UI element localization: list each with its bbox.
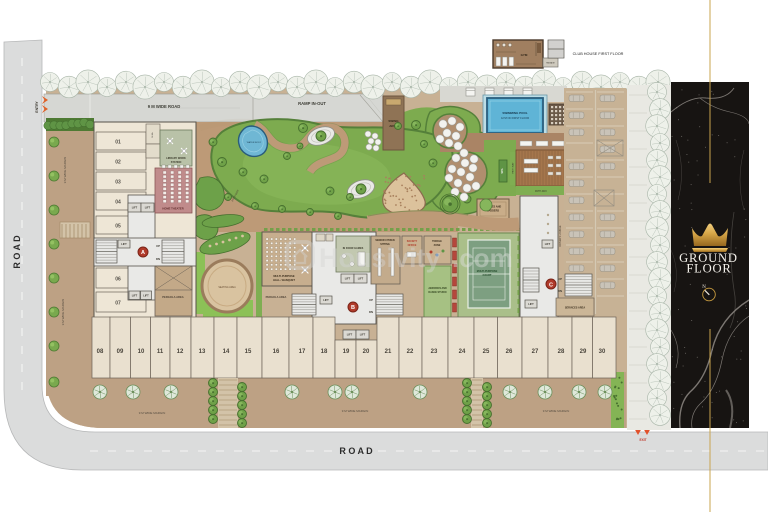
svg-text:09: 09 (117, 349, 124, 355)
svg-text:CLUB HOUSE FIRST FLOOR: CLUB HOUSE FIRST FLOOR (573, 52, 624, 56)
svg-text:DN: DN (558, 289, 562, 293)
svg-text:11: 11 (157, 349, 164, 355)
svg-text:LIFT: LIFT (121, 242, 127, 246)
svg-text:9 M WIDE MARGIN: 9 M WIDE MARGIN (61, 299, 65, 326)
svg-text:MULTI-PURPOSE: MULTI-PURPOSE (273, 274, 295, 278)
svg-text:02: 02 (115, 160, 121, 166)
svg-text:M.BA: M.BA (151, 132, 154, 138)
svg-text:30: 30 (599, 349, 606, 355)
svg-text:SWIMMING POOL: SWIMMING POOL (502, 111, 527, 115)
svg-text:ENTRY: ENTRY (35, 101, 39, 113)
svg-text:A: A (141, 250, 145, 256)
svg-text:PERGOLA AREA: PERGOLA AREA (266, 295, 287, 299)
svg-text:13: 13 (199, 349, 206, 355)
svg-text:STATION: STATION (171, 161, 182, 164)
svg-text:SPA: SPA (500, 168, 504, 173)
svg-text:C: C (549, 282, 553, 288)
svg-text:9 M WIDE MARGIN: 9 M WIDE MARGIN (139, 411, 166, 415)
svg-text:9 M WIDE MARGIN: 9 M WIDE MARGIN (543, 409, 570, 413)
svg-text:LIFT: LIFT (528, 302, 534, 306)
svg-text:HALL / BANQUET: HALL / BANQUET (273, 278, 295, 282)
svg-text:LIFT: LIFT (323, 298, 329, 302)
svg-text:18: 18 (321, 349, 328, 355)
svg-text:PATH-WAY: PATH-WAY (535, 190, 547, 193)
svg-text:29: 29 (580, 349, 587, 355)
svg-text:SENIOR CITIZEN: SENIOR CITIZEN (375, 239, 394, 242)
svg-text:B: B (351, 305, 355, 311)
svg-text:15: 15 (245, 349, 252, 355)
svg-text:R O A D: R O A D (12, 235, 22, 269)
svg-text:PATH-WAY: PATH-WAY (512, 162, 515, 174)
svg-text:17: 17 (299, 349, 306, 355)
svg-text:PASSAGE: PASSAGE (546, 62, 555, 65)
svg-text:LIFT: LIFT (145, 206, 151, 210)
svg-text:24: 24 (459, 349, 466, 355)
svg-text:LIFT: LIFT (143, 293, 149, 297)
svg-text:.com: .com (452, 243, 513, 273)
svg-text:RAMP IN-OUT: RAMP IN-OUT (298, 101, 326, 106)
svg-text:06: 06 (115, 277, 121, 283)
svg-text:25: 25 (483, 349, 490, 355)
svg-text:01: 01 (115, 140, 121, 146)
svg-text:LIFT: LIFT (347, 333, 353, 337)
svg-text:22: 22 (407, 349, 414, 355)
svg-text:PERGOLA AREA: PERGOLA AREA (162, 295, 184, 299)
svg-text:LIFT: LIFT (132, 293, 138, 297)
svg-text:Housivity: Housivity (319, 243, 441, 273)
svg-text:DRIVER'S LOUNGE: DRIVER'S LOUNGE (560, 225, 562, 246)
svg-text:LIFT: LIFT (132, 206, 138, 210)
svg-text:20: 20 (363, 349, 370, 355)
svg-text:FLOOR: FLOOR (686, 262, 731, 276)
svg-text:EXIT: EXIT (639, 438, 646, 442)
svg-text:DN: DN (156, 257, 160, 261)
svg-text:UP: UP (369, 298, 373, 302)
svg-text:LIBRARY WORK: LIBRARY WORK (166, 157, 186, 160)
svg-text:27: 27 (532, 349, 539, 355)
svg-text:26: 26 (506, 349, 513, 355)
svg-text:GYM: GYM (521, 53, 528, 57)
svg-text:LIFT: LIFT (360, 333, 366, 337)
svg-text:LIFT: LIFT (545, 242, 551, 246)
svg-text:05: 05 (115, 224, 121, 230)
svg-text:R O A D: R O A D (339, 446, 373, 456)
svg-text:DN: DN (369, 310, 373, 314)
svg-text:03: 03 (115, 180, 121, 186)
svg-text:07: 07 (115, 301, 121, 307)
svg-text:LIFT: LIFT (345, 277, 351, 281)
svg-text:WATER BODY: WATER BODY (247, 141, 262, 144)
svg-text:9 M WIDE MARGIN: 9 M WIDE MARGIN (63, 157, 67, 184)
svg-text:14: 14 (223, 349, 230, 355)
svg-text:GYM ON FIRST FLOOR: GYM ON FIRST FLOOR (501, 116, 529, 120)
svg-text:UP: UP (558, 277, 562, 281)
svg-text:DANCE STUDIO: DANCE STUDIO (428, 291, 446, 294)
svg-text:16: 16 (273, 349, 280, 355)
svg-text:21: 21 (385, 349, 392, 355)
svg-text:SEATING AREA: SEATING AREA (218, 286, 236, 289)
svg-text:19: 19 (343, 349, 350, 355)
svg-text:04: 04 (115, 200, 121, 206)
svg-text:28: 28 (558, 349, 565, 355)
svg-text:AEROBICS AND: AEROBICS AND (428, 287, 447, 290)
svg-text:COURT: COURT (483, 274, 492, 277)
svg-text:9 M WIDE ROAD: 9 M WIDE ROAD (148, 104, 181, 109)
svg-text:10: 10 (138, 349, 145, 355)
svg-text:9 M WIDE MARGIN: 9 M WIDE MARGIN (342, 409, 369, 413)
svg-text:SERVICES AREA: SERVICES AREA (565, 307, 585, 310)
svg-text:23: 23 (431, 349, 438, 355)
svg-text:HOME THEATER: HOME THEATER (162, 207, 183, 211)
svg-text:UP: UP (156, 244, 160, 248)
svg-text:LIFT: LIFT (358, 277, 364, 281)
svg-text:08: 08 (97, 349, 104, 355)
svg-text:12: 12 (177, 349, 184, 355)
